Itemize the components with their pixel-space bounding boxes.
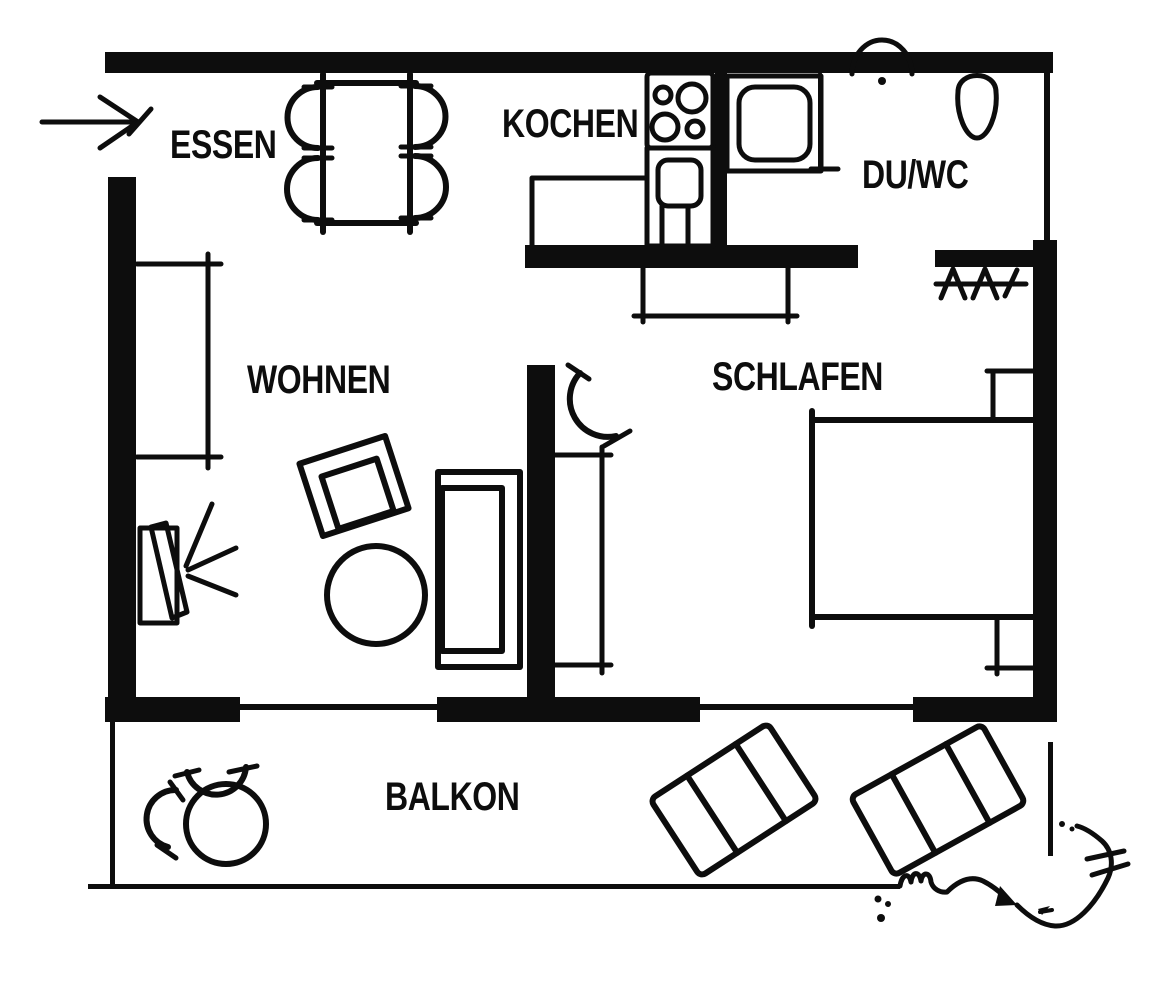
- shower-icon: [727, 74, 838, 171]
- balcony-chair-icon: [147, 766, 257, 858]
- armchair-icon: [299, 436, 408, 536]
- nightstand-icon: [987, 371, 1033, 674]
- kitchen-sink-icon: [647, 148, 713, 246]
- floor-plan: ESSEN KOCHEN DU/WC WOHNEN SCHLAFEN BALKO…: [0, 0, 1163, 1000]
- sideboard-icon: [634, 268, 797, 322]
- kitchen-counter: [532, 178, 645, 246]
- sofa-icon: [438, 472, 520, 667]
- wardrobe-hatch-icon: [936, 269, 1026, 298]
- tv-icon: [140, 504, 236, 623]
- chair-icon: [287, 86, 446, 220]
- entrance-arrow-icon: [42, 97, 151, 148]
- wall-shelf-icon: [137, 254, 221, 468]
- sun-lounger-icon: [650, 723, 818, 876]
- sun-lounger-icon: [851, 724, 1026, 875]
- corridor-wardrobe-icon: [555, 447, 611, 673]
- bed-icon: [812, 411, 1033, 626]
- toilet-icon: [958, 76, 997, 139]
- hand-drawn-arrow-icon: [875, 821, 1129, 926]
- floorplan-drawing: [0, 0, 1163, 1000]
- stove-icon: [647, 73, 713, 148]
- door-swing-icon: [568, 365, 630, 446]
- dining-table-icon: [317, 74, 416, 232]
- washbasin-icon: [852, 40, 912, 85]
- coffee-table-icon: [327, 546, 425, 644]
